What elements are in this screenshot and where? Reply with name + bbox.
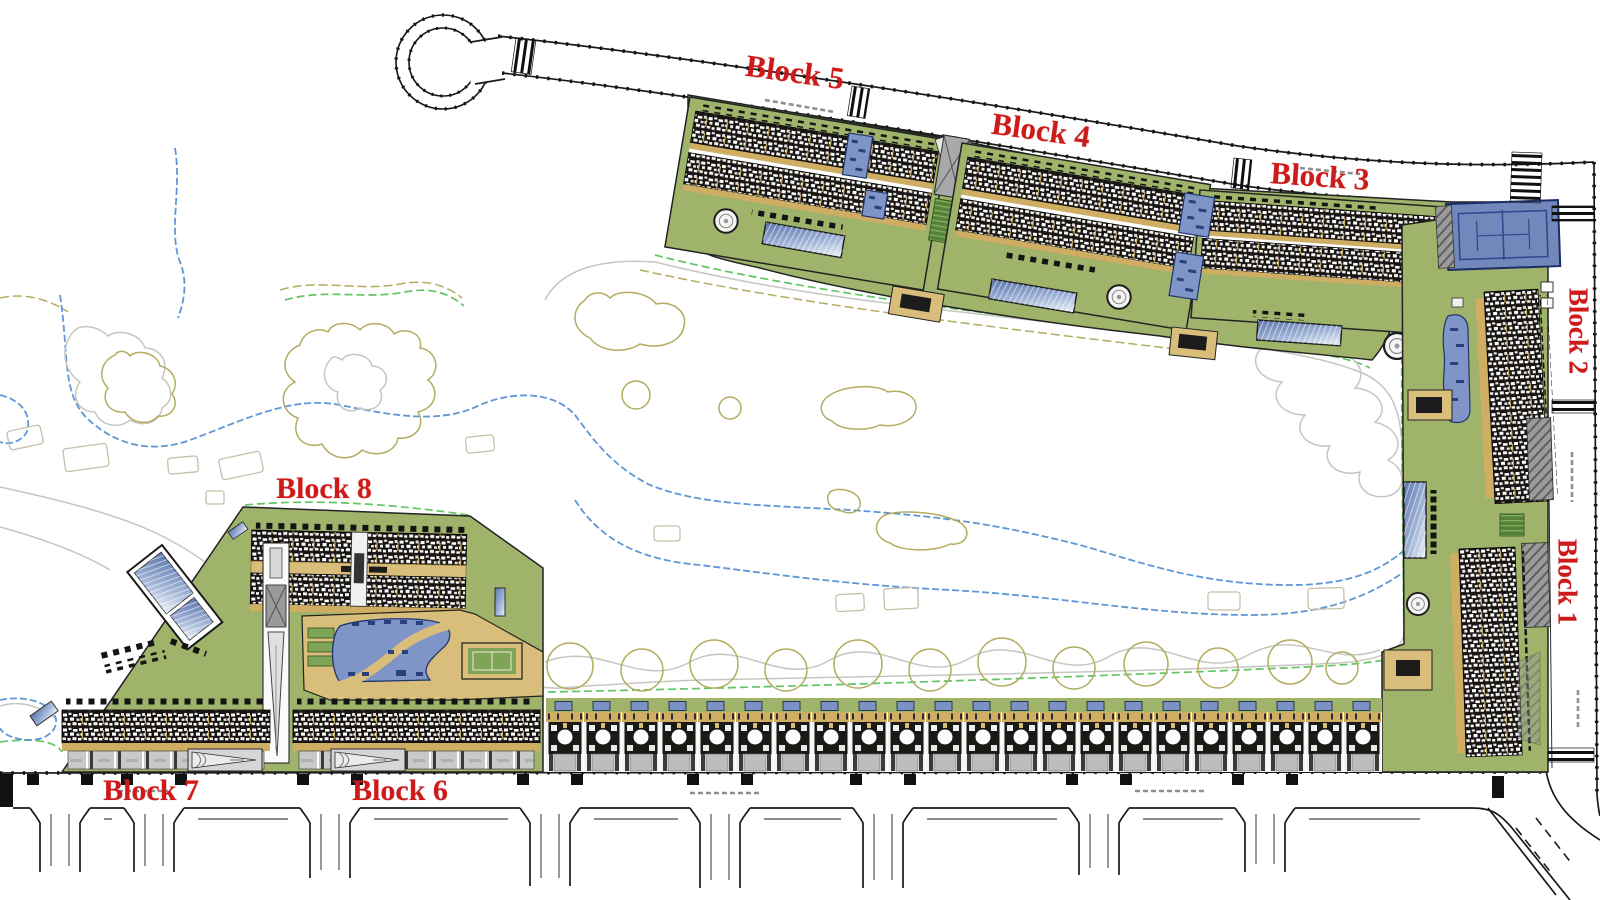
site-plan-drawing	[0, 0, 1600, 900]
pergola-pad	[1408, 390, 1452, 420]
label-block-2: Block 2	[1565, 288, 1592, 374]
sport-court	[462, 643, 522, 679]
plaza-pad	[1384, 650, 1432, 690]
label-block-3: Block 3	[1270, 157, 1371, 195]
right-column-parcel	[1382, 200, 1560, 772]
block-5-parcel	[665, 97, 948, 290]
label-block-8: Block 8	[276, 474, 372, 504]
label-block-6: Block 6	[352, 776, 448, 806]
label-block-1: Block 1	[1554, 539, 1581, 625]
label-block-7: Block 7	[103, 776, 199, 806]
pergola-pad	[1169, 327, 1218, 360]
bottom-road	[0, 772, 1570, 900]
cul-de-sac-road	[396, 15, 505, 109]
column-glass-building	[1404, 482, 1439, 558]
side-streets	[27, 774, 1298, 888]
round-plaza	[714, 209, 737, 232]
townhouse-row	[546, 698, 1382, 772]
tennis-court	[1446, 200, 1560, 270]
block-8-parcel	[62, 507, 543, 772]
site-plan: Block 5 Block 4 Block 3 Block 2 Block 1 …	[0, 0, 1600, 900]
